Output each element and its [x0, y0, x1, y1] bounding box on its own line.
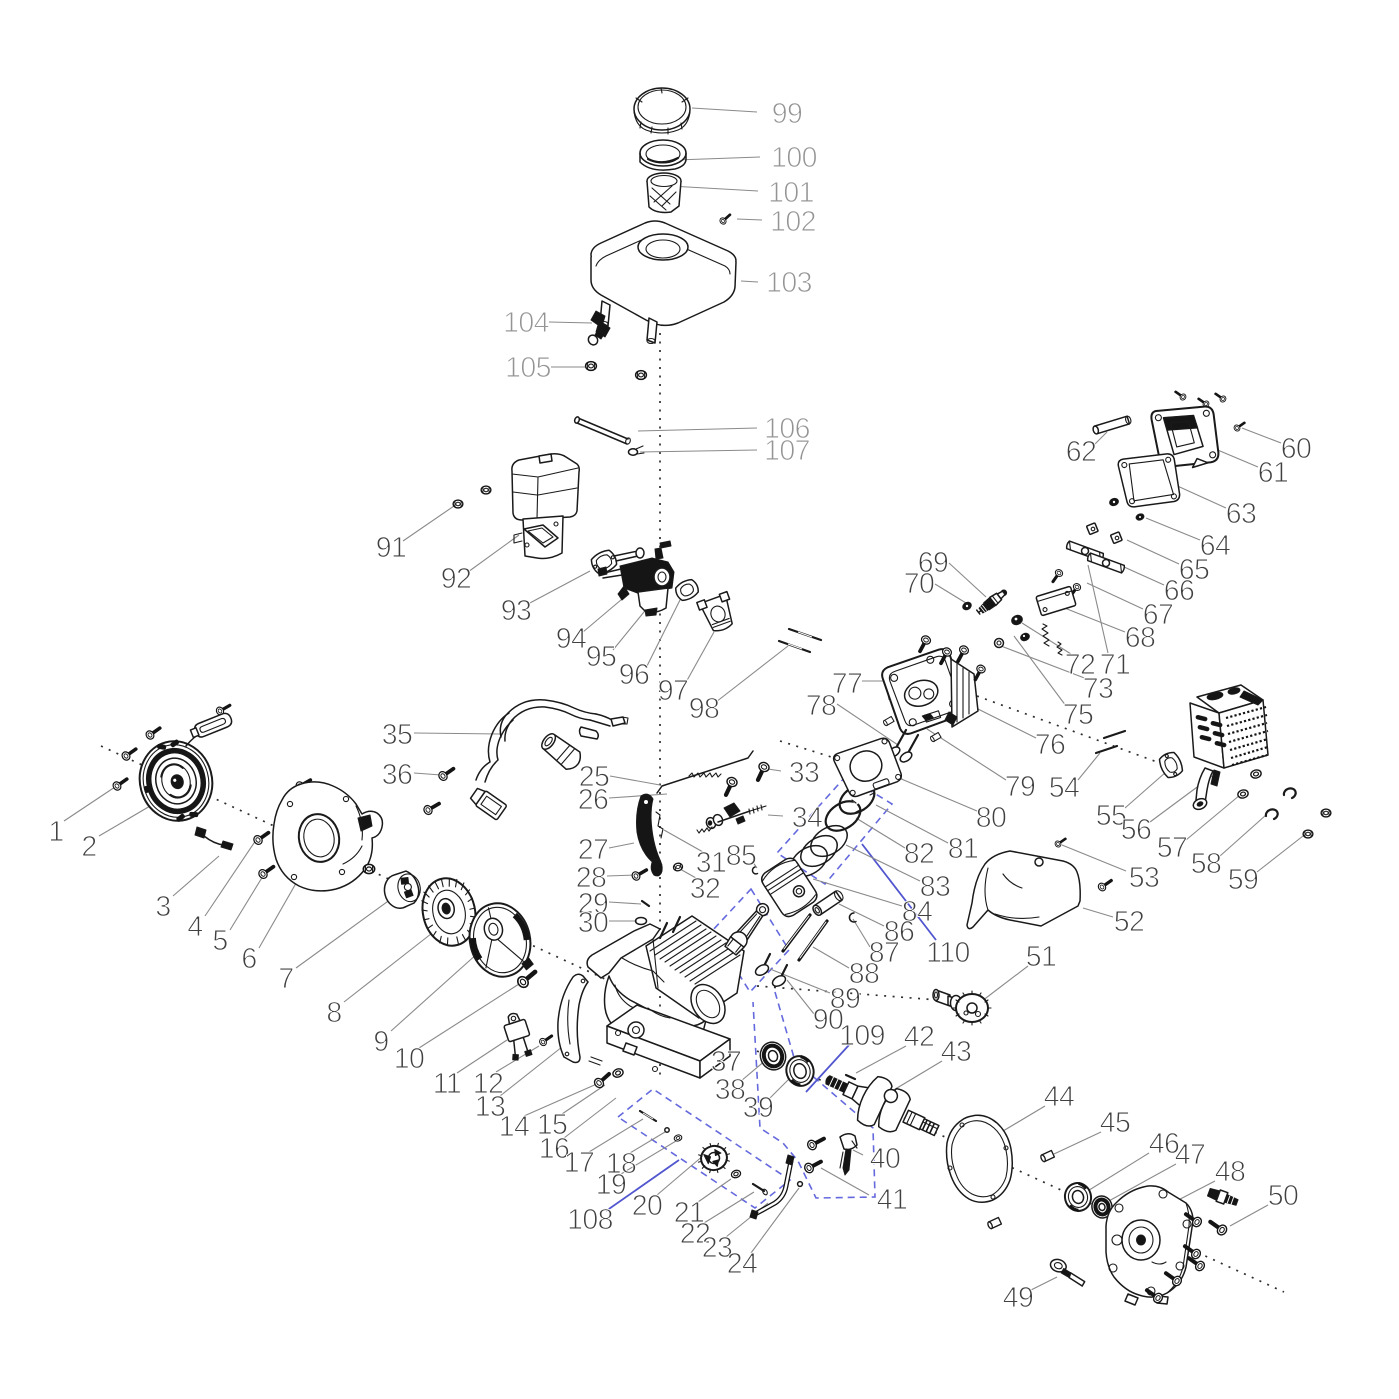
svg-text:102: 102	[770, 206, 816, 238]
svg-text:49: 49	[1003, 1282, 1034, 1314]
svg-text:24: 24	[727, 1248, 758, 1280]
svg-text:76: 76	[1035, 729, 1066, 761]
svg-text:48: 48	[1215, 1156, 1246, 1188]
svg-text:44: 44	[1044, 1081, 1075, 1113]
svg-text:14: 14	[499, 1111, 530, 1143]
svg-text:109: 109	[839, 1020, 885, 1052]
svg-text:40: 40	[870, 1143, 901, 1175]
svg-text:61: 61	[1258, 457, 1289, 489]
svg-text:10: 10	[394, 1043, 425, 1075]
svg-text:104: 104	[503, 307, 550, 339]
svg-text:9: 9	[373, 1026, 388, 1058]
svg-text:6: 6	[241, 943, 256, 975]
svg-text:80: 80	[976, 802, 1007, 834]
svg-text:96: 96	[619, 659, 650, 691]
svg-text:99: 99	[772, 98, 803, 130]
svg-text:63: 63	[1226, 498, 1257, 530]
svg-text:7: 7	[278, 963, 293, 995]
svg-text:11: 11	[433, 1068, 461, 1100]
svg-text:92: 92	[441, 563, 472, 595]
svg-text:53: 53	[1129, 862, 1160, 894]
svg-text:95: 95	[586, 641, 617, 673]
svg-text:108: 108	[567, 1204, 613, 1236]
svg-text:110: 110	[926, 937, 970, 969]
svg-text:41: 41	[877, 1184, 908, 1216]
svg-text:8: 8	[326, 997, 341, 1029]
svg-text:59: 59	[1228, 864, 1259, 896]
svg-text:39: 39	[743, 1092, 774, 1124]
svg-text:47: 47	[1175, 1139, 1206, 1171]
svg-text:52: 52	[1114, 906, 1145, 938]
svg-text:70: 70	[904, 568, 935, 600]
svg-text:45: 45	[1100, 1107, 1131, 1139]
svg-text:43: 43	[941, 1036, 972, 1068]
svg-text:19: 19	[596, 1169, 627, 1201]
svg-text:56: 56	[1121, 814, 1152, 846]
svg-text:105: 105	[505, 352, 551, 384]
svg-text:32: 32	[690, 873, 721, 905]
svg-text:1: 1	[48, 816, 63, 848]
svg-text:34: 34	[792, 802, 823, 834]
svg-text:97: 97	[658, 675, 689, 707]
svg-text:5: 5	[212, 925, 227, 957]
svg-text:94: 94	[556, 623, 587, 655]
svg-text:57: 57	[1157, 832, 1188, 864]
svg-text:38: 38	[715, 1074, 746, 1106]
svg-text:107: 107	[764, 435, 810, 467]
svg-text:17: 17	[564, 1147, 595, 1179]
svg-text:82: 82	[904, 838, 935, 870]
svg-text:26: 26	[578, 784, 609, 816]
svg-text:62: 62	[1066, 436, 1097, 468]
svg-text:54: 54	[1049, 772, 1080, 804]
svg-text:91: 91	[376, 532, 407, 564]
svg-text:77: 77	[832, 668, 863, 700]
svg-text:100: 100	[771, 142, 817, 174]
svg-text:101: 101	[768, 177, 814, 209]
svg-text:58: 58	[1191, 848, 1222, 880]
svg-text:33: 33	[789, 757, 820, 789]
svg-text:51: 51	[1026, 941, 1057, 973]
svg-text:50: 50	[1268, 1180, 1299, 1212]
svg-text:81: 81	[948, 833, 979, 865]
svg-text:78: 78	[806, 690, 837, 722]
svg-text:20: 20	[632, 1190, 663, 1222]
svg-text:35: 35	[382, 719, 413, 751]
svg-text:103: 103	[766, 267, 812, 299]
svg-text:2: 2	[81, 831, 96, 863]
svg-text:36: 36	[382, 759, 413, 791]
svg-text:30: 30	[578, 907, 609, 939]
svg-text:93: 93	[501, 595, 532, 627]
svg-text:75: 75	[1063, 699, 1094, 731]
svg-text:79: 79	[1005, 771, 1036, 803]
svg-text:42: 42	[904, 1021, 935, 1053]
svg-text:85: 85	[726, 840, 757, 872]
svg-text:3: 3	[155, 891, 170, 923]
svg-text:4: 4	[187, 911, 203, 943]
svg-text:98: 98	[689, 693, 720, 725]
